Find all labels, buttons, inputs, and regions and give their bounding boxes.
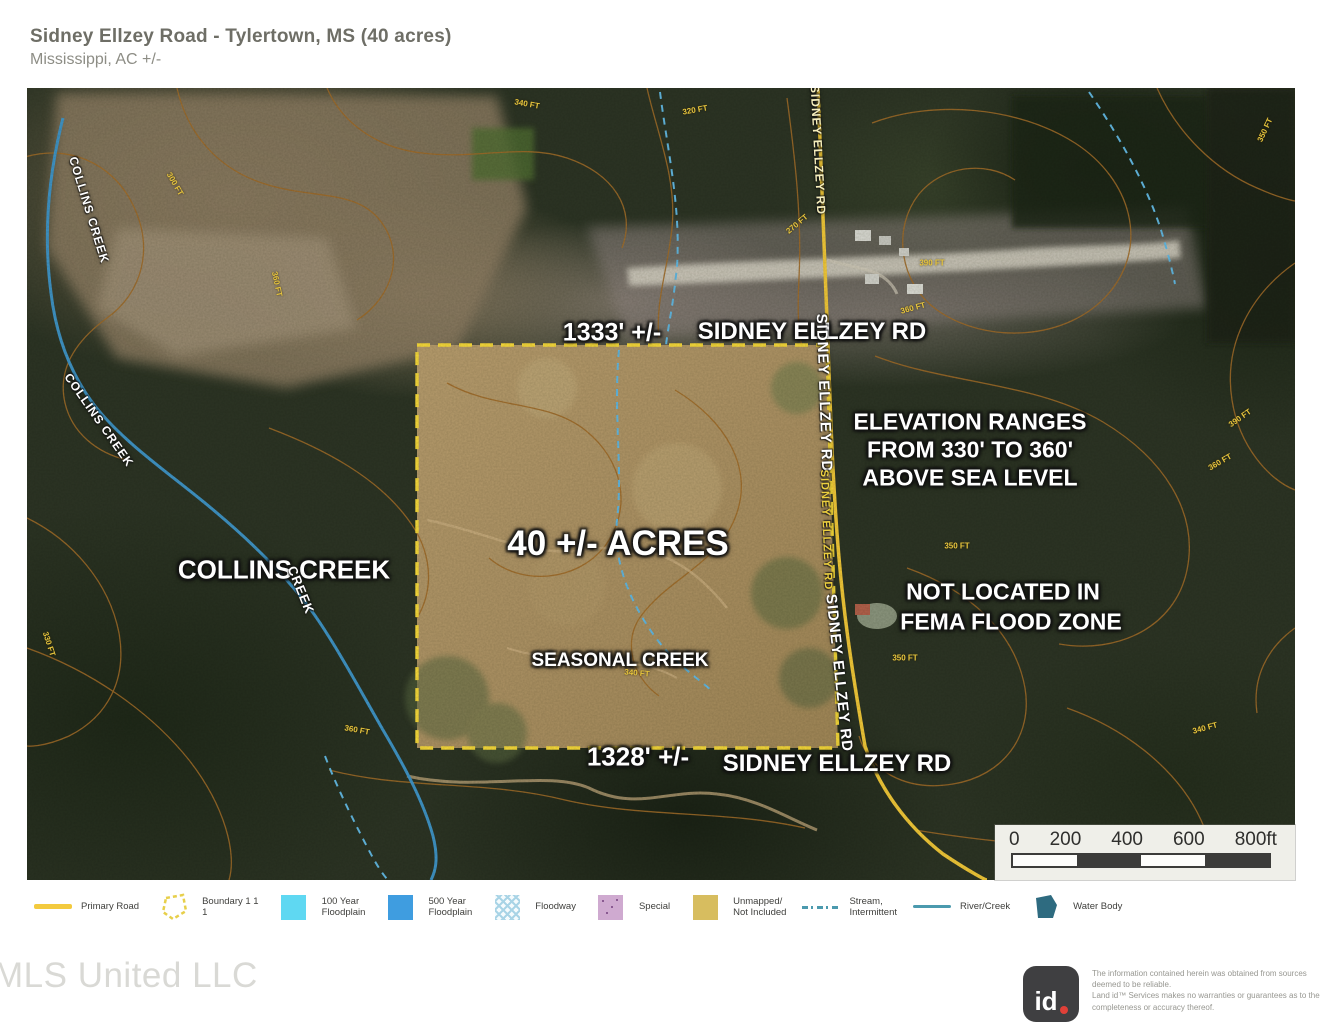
contour-elevation-label: 340 FT (1192, 720, 1219, 735)
contour-elevation-label: 340 FT (624, 667, 650, 678)
legend-swatch-river-creek-icon (912, 905, 952, 908)
contour-elevation-label: 340 FT (514, 97, 541, 110)
aerial-map: 1333' +/-SIDNEY ELLZEY RDELEVATION RANGE… (27, 88, 1295, 880)
contour-elevation-label: 360 FT (900, 300, 927, 315)
contour-elevation-label: 350 FT (892, 654, 917, 663)
legend-label: 100 Year Floodplain (322, 896, 366, 919)
legend-swatch-floodway-icon (487, 895, 527, 920)
map-label-road-lower-vert: SIDNEY ELLZEY RD (822, 593, 856, 753)
legend-label: Boundary 1 1 1 (202, 896, 259, 919)
legend-item-stream-intermittent: Stream, Intermittent (801, 896, 897, 919)
legend-item-special: Special (591, 895, 670, 920)
page-title: Sidney Ellzey Road - Tylertown, MS (40 a… (30, 26, 452, 48)
legend-item-boundary: Boundary 1 1 1 (154, 893, 259, 921)
legend-item-floodway: Floodway (487, 895, 576, 920)
contour-elevation-label: 270 FT (784, 212, 809, 235)
brand-wordmark: MLS United LLC (0, 956, 258, 996)
legend-label: Floodway (535, 901, 576, 912)
legend-label: River/Creek (960, 901, 1010, 912)
header: Sidney Ellzey Road - Tylertown, MS (40 a… (30, 26, 452, 69)
map-label-seasonal-creek: SEASONAL CREEK (531, 650, 708, 672)
scale-tick: 800ft (1235, 829, 1277, 851)
scale-bar-segment (1205, 855, 1269, 866)
map-label-fema-line-2: FEMA FLOOD ZONE (900, 609, 1121, 636)
legend-swatch-floodplain-100-icon (274, 895, 314, 920)
map-label-road-label-bottom: SIDNEY ELLZEY RD (723, 750, 952, 778)
contour-elevation-label: 320 FT (682, 103, 709, 116)
scale-tick: 0 (1009, 829, 1020, 851)
page-subtitle: Mississippi, AC +/- (30, 51, 452, 69)
scale-bar-segment (1013, 855, 1077, 866)
contour-elevation-label: 360 FT (344, 723, 371, 736)
legend-swatch-primary-road-icon (33, 904, 73, 909)
contour-elevation-label: 390 FT (919, 259, 944, 268)
map-label-dim-bottom: 1328' +/- (587, 742, 689, 773)
map-label-elevation-line-2: FROM 330' TO 360' (867, 437, 1073, 464)
legend-label: Primary Road (81, 901, 139, 912)
legend: Primary RoadBoundary 1 1 1100 Year Flood… (33, 884, 1293, 930)
legend-label: Unmapped/ Not Included (733, 896, 786, 919)
legend-item-primary-road: Primary Road (33, 901, 139, 912)
legend-item-unmapped: Unmapped/ Not Included (685, 895, 786, 920)
map-label-fema-line-1: NOT LOCATED IN (906, 579, 1100, 606)
legend-swatch-boundary-icon (154, 893, 194, 921)
map-scale-bar: 0200400600800ft (995, 825, 1295, 880)
legend-swatch-stream-intermittent-icon (801, 906, 841, 909)
disclaimer-text: The information contained herein was obt… (1092, 968, 1320, 1013)
legend-label: Special (639, 901, 670, 912)
scale-tick: 200 (1050, 829, 1082, 851)
scale-bar-segment (1141, 855, 1205, 866)
map-label-road-label-top: SIDNEY ELLZEY RD (698, 318, 927, 346)
map-label-collins-creek-small-2: COLLINS CREEK (61, 371, 136, 470)
map-label-dim-top: 1333' +/- (563, 319, 661, 348)
contour-elevation-label: 360 FT (270, 271, 284, 298)
scale-tick: 400 (1111, 829, 1143, 851)
legend-swatch-special-icon (591, 895, 631, 920)
legend-item-floodplain-500: 500 Year Floodplain (380, 895, 472, 920)
legend-label: 500 Year Floodplain (428, 896, 472, 919)
map-labels-overlay: 1333' +/-SIDNEY ELLZEY RDELEVATION RANGE… (27, 88, 1295, 880)
map-label-acreage: 40 +/- ACRES (507, 524, 728, 564)
legend-label: Water Body (1073, 901, 1122, 912)
contour-elevation-label: 300 FT (165, 171, 185, 197)
map-label-road-top-vert: SIDNEY ELLZEY RD (808, 88, 829, 215)
contour-elevation-label: 350 FT (944, 542, 969, 551)
map-label-elevation-line-3: ABOVE SEA LEVEL (862, 465, 1077, 492)
contour-elevation-label: 390 FT (1227, 407, 1253, 429)
legend-item-river-creek: River/Creek (912, 901, 1010, 912)
legend-swatch-unmapped-icon (685, 895, 725, 920)
scale-bar-segment (1077, 855, 1141, 866)
legend-label: Stream, Intermittent (849, 896, 897, 919)
legend-swatch-floodplain-500-icon (380, 895, 420, 920)
contour-elevation-label: 350 FT (1256, 117, 1275, 144)
listing-map-page: Sidney Ellzey Road - Tylertown, MS (40 a… (0, 0, 1325, 1024)
scale-tick: 600 (1173, 829, 1205, 851)
contour-elevation-label: 330 FT (41, 631, 57, 658)
contour-elevation-label: 360 FT (1207, 452, 1233, 472)
map-label-collins-creek-small-1: COLLINS CREEK (66, 155, 112, 265)
map-label-elevation-line-1: ELEVATION RANGES (854, 409, 1087, 436)
land-id-logo-text: id (1034, 988, 1057, 1014)
legend-swatch-water-body-icon (1025, 893, 1065, 921)
legend-item-floodplain-100: 100 Year Floodplain (274, 895, 366, 920)
land-id-logo-dot (1060, 1006, 1068, 1014)
scale-tick-labels: 0200400600800ft (995, 825, 1295, 851)
legend-item-water-body: Water Body (1025, 893, 1122, 921)
scale-bar-segments (1011, 853, 1271, 868)
map-label-road-small-vert: SIDNEY ELLZEY RD (818, 469, 834, 590)
land-id-logo: id (1023, 966, 1079, 1022)
